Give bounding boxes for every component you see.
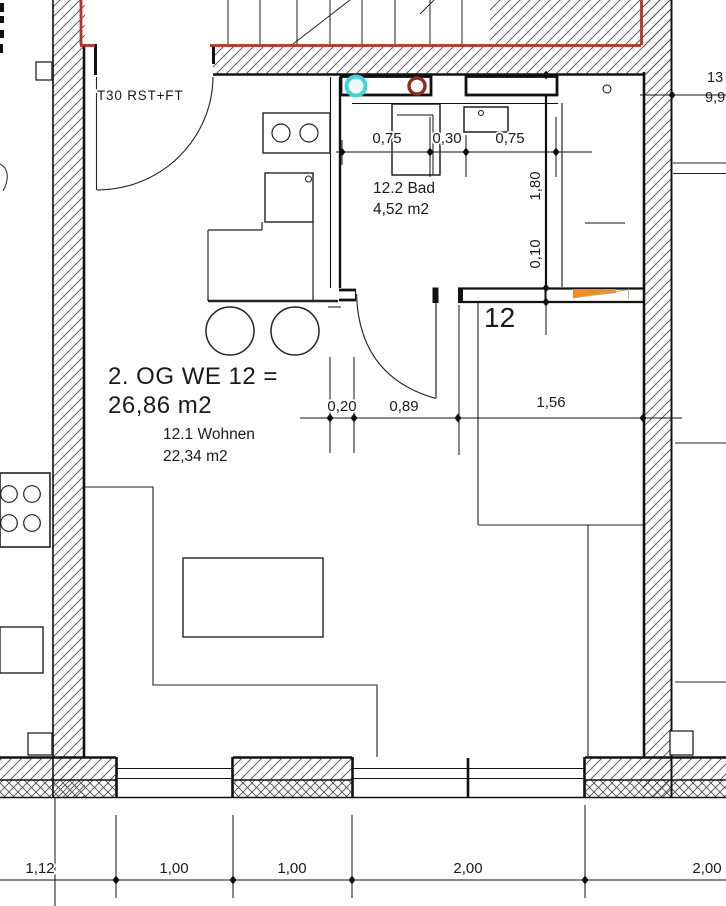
dim-wall-thickness: 0,10: [527, 239, 544, 268]
dim-bath-1: 0,75: [372, 130, 401, 147]
bottom-wall-seg3: [585, 757, 726, 780]
bottom-wall-insulation-seg3: [585, 780, 726, 798]
dim-hall-1: 0,20: [327, 398, 356, 415]
dim-bath-height: 1,80: [527, 171, 544, 200]
entry-door-label: T30 RST+FT: [97, 88, 183, 103]
dim-bottom-1: 1,12: [25, 860, 54, 877]
dim-bath-3: 0,75: [495, 130, 524, 147]
dim-bottom-4: 2,00: [453, 860, 482, 877]
top-wall-band: [213, 45, 672, 75]
right-wall: [643, 0, 672, 798]
floorplan-canvas: T30 RST+FT 0,75 0,30 0,75 1,80 0,10 12.2…: [0, 0, 726, 906]
dim-hall-3: 1,56: [536, 394, 565, 411]
bottom-wall-seg2: [233, 757, 352, 780]
bottom-wall-insulation-seg1: [0, 780, 116, 798]
dim-right-clipped-1: 13: [707, 70, 723, 86]
unit-title-line1: 2. OG WE 12 =: [108, 363, 278, 390]
hot-water-pipe-icon: [409, 78, 425, 94]
left-wall: [52, 0, 85, 798]
living-room-label: 12.1 Wohnen: [163, 426, 255, 443]
living-room-area: 22,34 m2: [163, 448, 228, 465]
dim-bath-2: 0,30: [432, 130, 461, 147]
dim-bottom-2: 1,00: [159, 860, 188, 877]
unit-title-line2: 26,86 m2: [108, 392, 212, 419]
hall-room-number: 12: [484, 302, 515, 333]
bottom-wall-seg1: [0, 757, 116, 780]
cold-water-pipe-icon: [347, 77, 366, 96]
pipe-box-right: [466, 77, 557, 96]
bottom-wall-insulation-seg2: [233, 780, 352, 798]
floorplan-page: T30 RST+FT 0,75 0,30 0,75 1,80 0,10 12.2…: [0, 0, 726, 906]
bath-room-area: 4,52 m2: [373, 201, 429, 218]
wall-niche-bottom-right: [670, 731, 693, 755]
bath-room-label: 12.2 Bad: [373, 180, 435, 197]
wall-niche-bottom-left: [28, 733, 52, 755]
dim-hall-2: 0,89: [389, 398, 418, 415]
dim-bottom-3: 1,00: [277, 860, 306, 877]
dim-bottom-5: 2,00: [692, 860, 721, 877]
wall-niche-top-left: [36, 62, 52, 80]
dim-right-clipped-2: 9,9: [705, 90, 725, 106]
